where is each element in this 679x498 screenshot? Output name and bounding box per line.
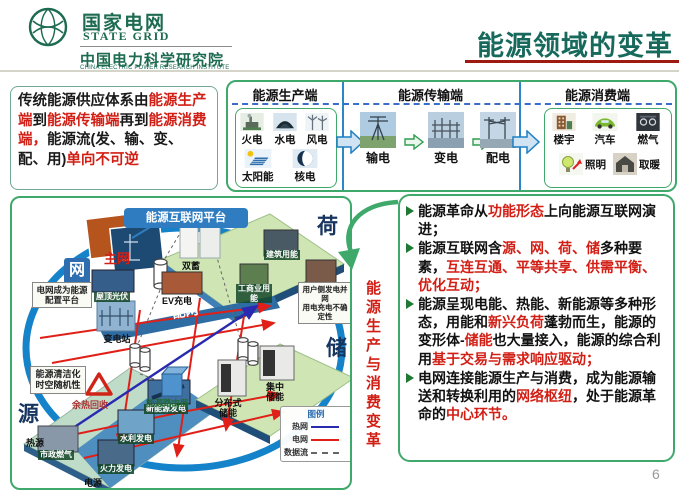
bullet-text: 能源呈现电能、热能、新能源等多种形态，用能和新兴负荷蓬勃而生，能源的变形体-储能…: [418, 295, 665, 368]
slide: 国家电网 STATE GRID 中国电力科学研究院 CHINA ELECTRIC…: [0, 0, 679, 498]
key-points-panel: 能源革命从功能形态上向能源互联网演进； 能源互联网含源、网、荷、储多种要素，互连…: [398, 194, 675, 462]
wind-power-icon: [304, 113, 330, 131]
solar-power-icon: [244, 149, 272, 168]
clean-energy-callout: 能源清洁化 时空随机性: [30, 366, 86, 394]
flow-item: 配电: [480, 112, 516, 166]
flow-dashed-line: [232, 103, 672, 105]
ev-charging-label: EV充电: [162, 294, 192, 307]
page-number: 6: [652, 466, 660, 482]
header-rule: [0, 70, 679, 72]
flow-item: 风电: [304, 113, 330, 147]
curved-arrow-icon: [332, 196, 402, 280]
energy-flow-panel: 能源生产端 能源传输端 能源消费端 火电 水电 风电 太阳能: [226, 80, 677, 192]
bullet-text: 能源互联网含源、网、荷、储多种要素，互连互通、平等共享、供需平衡、优化互动；: [418, 239, 665, 294]
bullet-item: 电网连接能源生产与消费，成为能源输送和转换利用的网络枢纽，处于能源革命的中心环节…: [406, 369, 665, 424]
power-net-line-icon: [311, 439, 339, 441]
thermal-power-icon: [239, 113, 265, 131]
page-title: 能源领域的变革: [477, 24, 673, 63]
thermal-gen-label: 火力发电: [98, 464, 134, 474]
bullet-item: 能源呈现电能、热能、新能源等多种形态，用能和新兴负荷蓬勃而生，能源的变形体-储能…: [406, 295, 665, 368]
rooftop-pv-label: 屋顶光伏: [94, 292, 130, 302]
data-flow-line-icon: [311, 452, 339, 454]
hydro-power-icon: [272, 113, 298, 131]
building-icon: [551, 113, 577, 131]
bullet-arrow-icon: [406, 299, 414, 309]
nuclear-power-icon: [292, 149, 318, 168]
flow-arrow-icon: [512, 130, 540, 154]
flow-item: 燃气: [635, 113, 661, 147]
lighting-icon: [559, 153, 583, 175]
title-underline: [465, 60, 679, 63]
waste-heat-label: 余热回收: [72, 398, 108, 411]
heat-net-line-icon: [311, 426, 339, 428]
user-side-callout: 用户侧发电并网 用电充电不确定性: [298, 282, 352, 324]
flow-arrow-icon: [404, 134, 424, 150]
power-source-label: 电源: [84, 476, 102, 489]
intro-text-box: 传统能源供应体系由能源生产端到能源传输端再到能源消费端，能源流(发、输、变、配、…: [10, 86, 218, 190]
substation-photo: [97, 301, 135, 331]
substation-label: 变电站: [97, 332, 137, 345]
brand-name-en: STATE GRID: [83, 29, 170, 44]
bullet-item: 能源互联网含源、网、荷、储多种要素，互连互通、平等共享、供需平衡、优化互动；: [406, 239, 665, 294]
state-grid-logo-icon: [27, 6, 69, 48]
industry-energy-label: 工商业用能: [236, 284, 272, 303]
energy-internet-diagram: 能源互联网平台 主网 网 电网成为能源配置平台 变电站 荷 储 源 配网 双蓄 …: [10, 196, 352, 490]
flow-item: 变电: [428, 112, 464, 166]
heat-source-label: 热源: [26, 436, 44, 449]
storage-node-label: 储: [326, 332, 347, 362]
production-box: 火电 水电 风电 太阳能 核电: [235, 108, 337, 188]
legend-row: 热网: [284, 420, 348, 433]
city-gas-label: 市政燃气: [38, 450, 74, 460]
flow-section-consumption-title: 能源消费端: [519, 85, 676, 104]
hydro-gen-label: 水利发电: [118, 434, 154, 444]
main-grid-label: 主网: [104, 248, 130, 267]
flow-item: 楼宇: [551, 113, 577, 147]
net-node-label: 网: [64, 258, 90, 284]
flow-item: 水电: [272, 113, 298, 147]
heating-icon: [613, 153, 637, 175]
brand-divider: [80, 46, 232, 47]
centralized-storage-label: 集中储能: [264, 382, 286, 403]
bullet-arrow-icon: [406, 206, 414, 216]
platform-title-label: 能源互联网平台: [124, 208, 248, 228]
dual-storage-label: 双蓄: [182, 259, 200, 272]
flow-item: 核电: [292, 149, 318, 184]
source-node-label: 源: [18, 398, 39, 428]
building-energy-label: 建筑用能: [264, 250, 300, 260]
consumption-box: 楼宇 汽车 燃气 照明 取暖: [544, 108, 672, 188]
vertical-transform-label: 能源生产与消费变革: [358, 280, 386, 478]
flow-section-production-title: 能源生产端: [228, 85, 342, 104]
legend-row: 数据流: [284, 446, 348, 459]
flow-section-transmission-title: 能源传输端: [342, 85, 519, 104]
transmission-tower-icon: [360, 112, 396, 148]
substation-icon: [428, 112, 464, 148]
gas-icon: [635, 113, 661, 131]
grid-platform-callout: 电网成为能源配置平台: [32, 282, 92, 308]
legend-row: 电网: [284, 433, 348, 446]
bullet-arrow-icon: [406, 373, 414, 383]
flow-item: 输电: [360, 112, 396, 166]
legend: 图例 热网 电网 数据流: [280, 406, 352, 462]
legend-title: 图例: [284, 408, 348, 420]
bullet-arrow-icon: [406, 243, 414, 253]
flow-item: 照明: [559, 153, 606, 175]
bullet-item: 能源革命从功能形态上向能源互联网演进；: [406, 202, 665, 238]
bullet-text: 电网连接能源生产与消费，成为能源输送和转换利用的网络枢纽，处于能源革命的中心环节…: [418, 369, 665, 424]
flow-item: 火电: [239, 113, 265, 147]
flow-item: 太阳能: [242, 149, 274, 184]
car-icon: [591, 113, 619, 131]
distributed-storage-label: 分布式储能: [212, 398, 244, 419]
bullet-text: 能源革命从功能形态上向能源互联网演进；: [418, 202, 665, 238]
energy-router-label: 能源路由器: [146, 397, 189, 409]
flow-item: 取暖: [613, 153, 660, 175]
distribution-icon: [480, 112, 516, 148]
flow-item: 汽车: [591, 113, 619, 147]
